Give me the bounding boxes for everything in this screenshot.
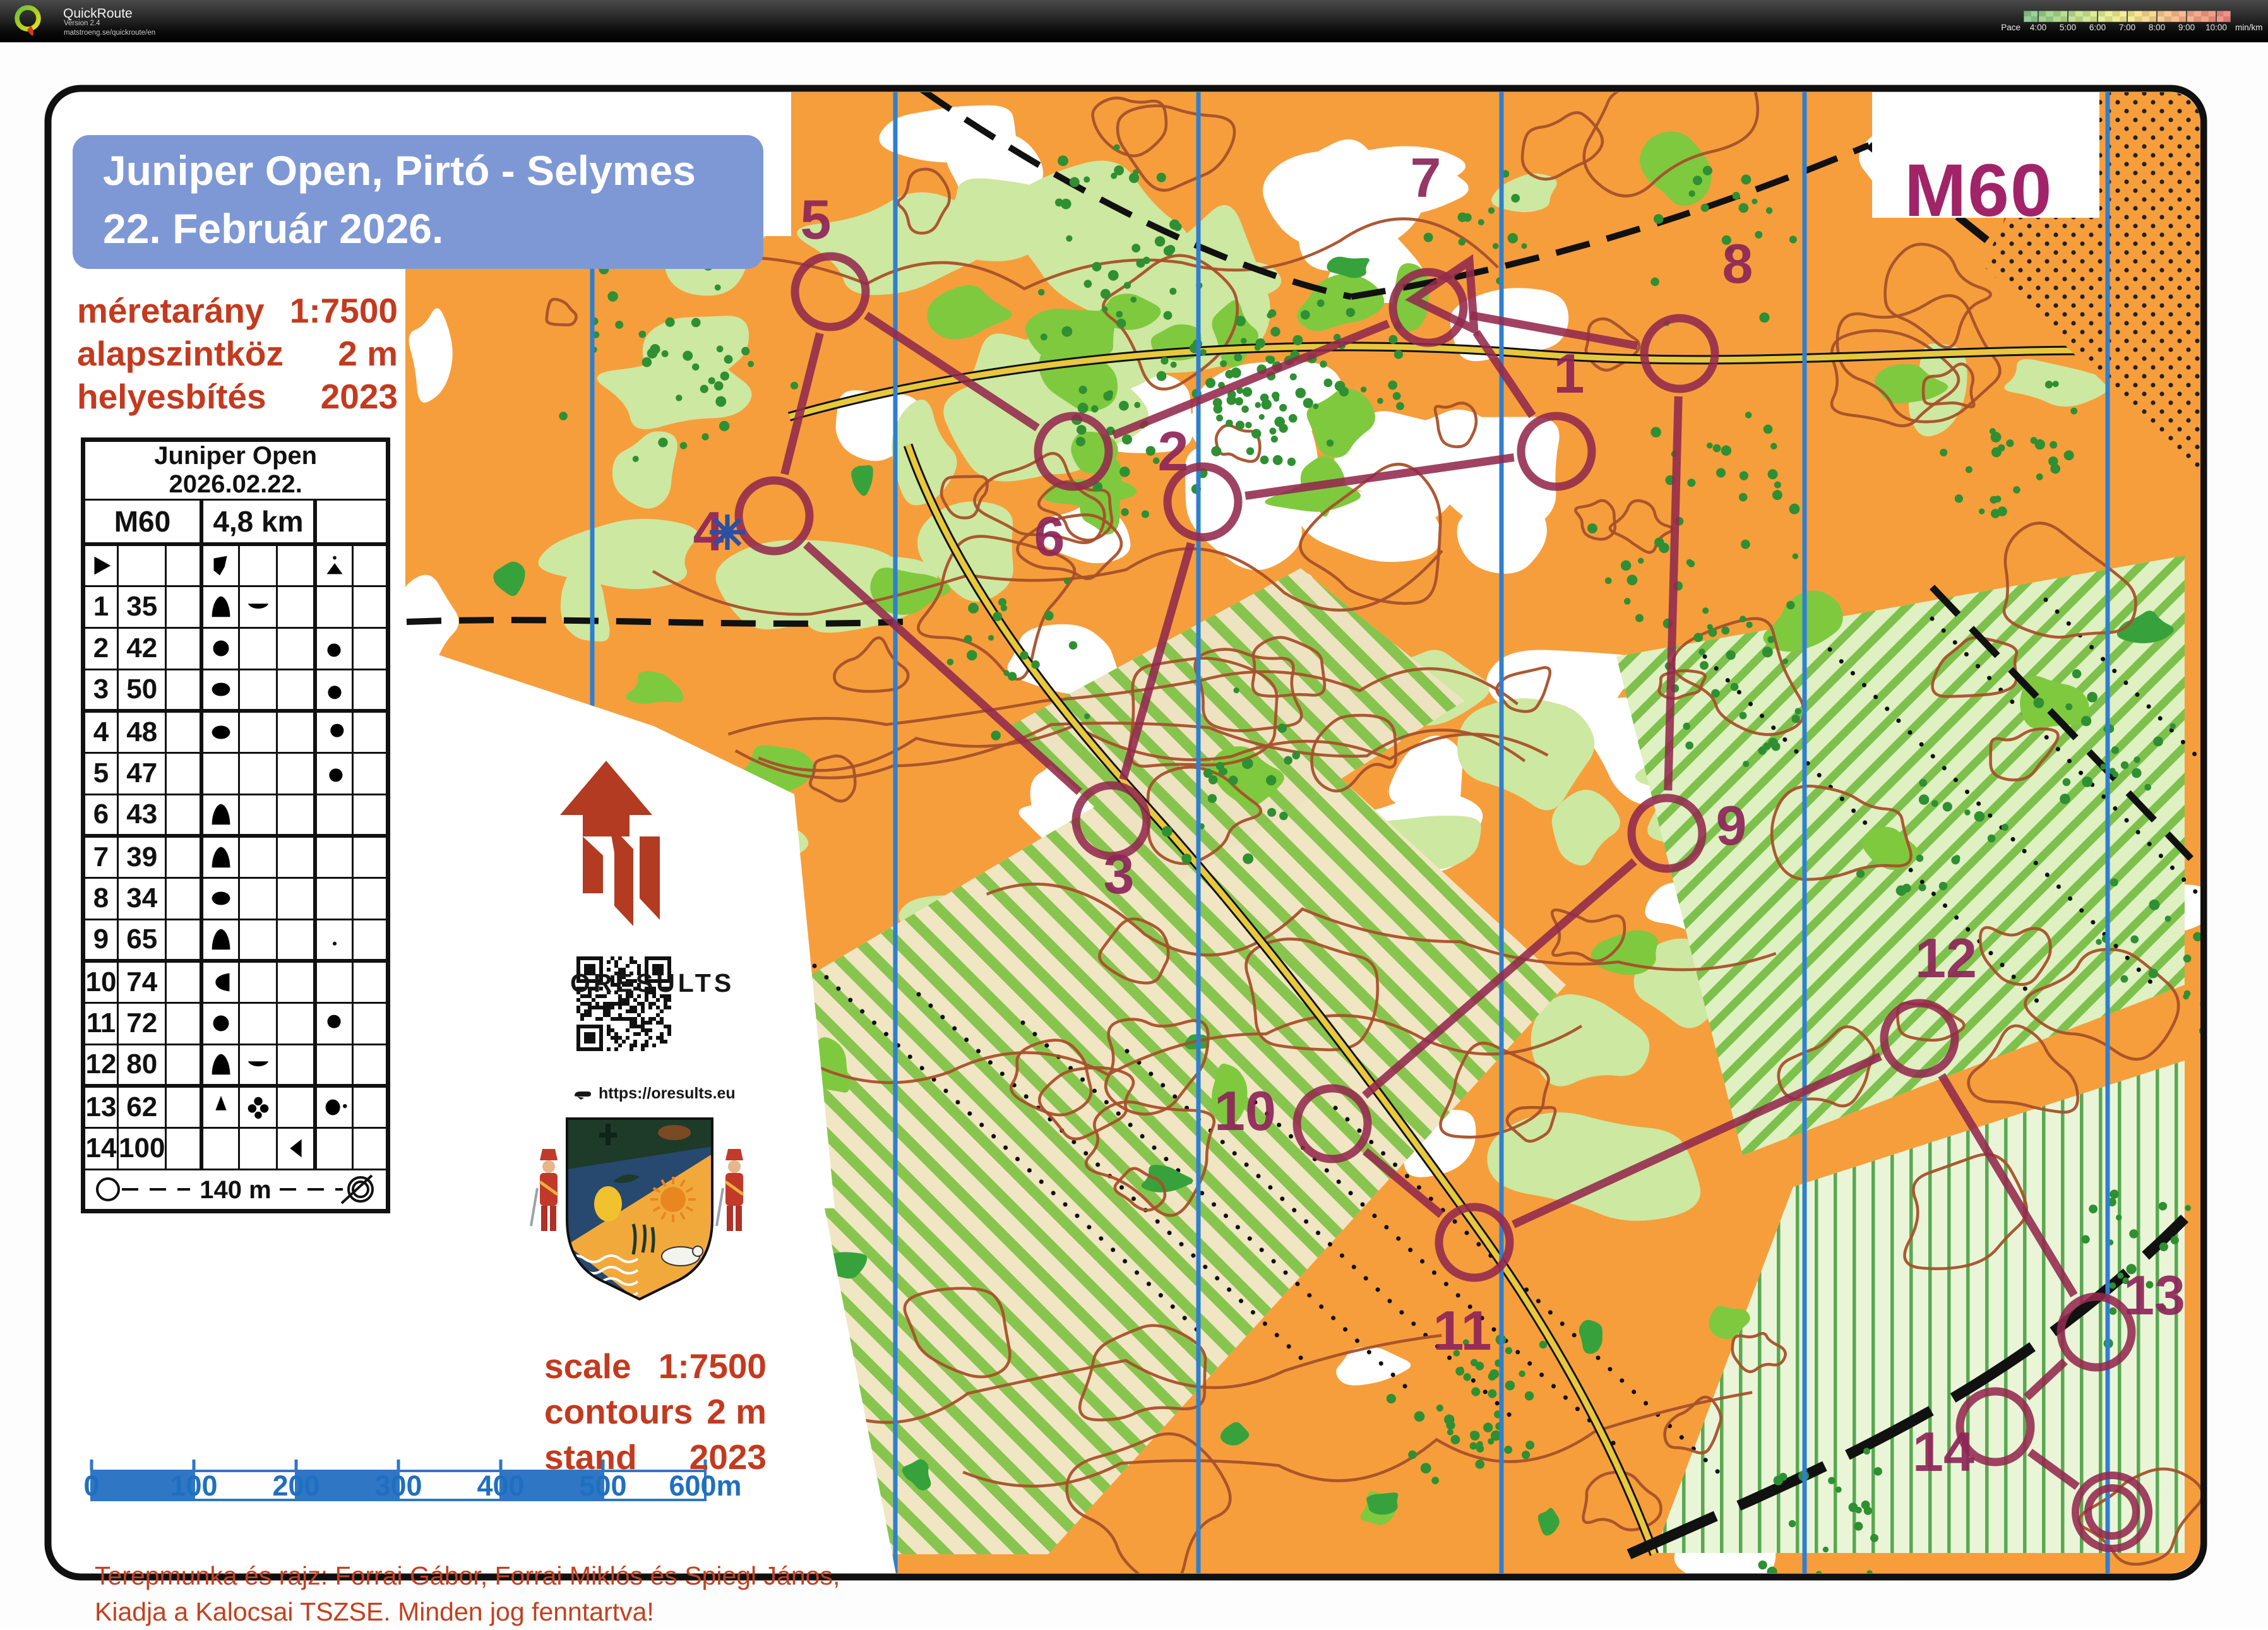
map-info-english: scale1:7500contours2 mstand2023 bbox=[544, 1343, 767, 1480]
start-symbol-icon bbox=[87, 551, 116, 580]
card-row: 448 bbox=[83, 711, 388, 753]
control-number: 13 bbox=[2123, 1264, 2185, 1326]
ellipse-ticks-symbol-icon bbox=[206, 884, 236, 913]
ellipse-symbol-icon bbox=[206, 675, 236, 704]
card-class: M60 bbox=[83, 500, 201, 545]
card-row: 350 bbox=[83, 669, 388, 711]
event-title: Juniper Open, Pirtó - Selymes bbox=[103, 146, 696, 194]
spur-symbol-icon bbox=[206, 968, 236, 997]
circle-l-left-symbol-icon bbox=[320, 718, 349, 747]
scale-bar-label: 100 bbox=[143, 1470, 244, 1502]
control-number: 3 bbox=[1104, 843, 1135, 905]
depression-symbol-icon bbox=[244, 592, 273, 621]
bush-symbol-icon bbox=[244, 1093, 273, 1122]
card-row: 1172 bbox=[83, 1002, 388, 1044]
oresults-label: ORESULTS bbox=[570, 968, 677, 998]
scale-bar-label: 300 bbox=[348, 1470, 449, 1502]
control-number: 14 bbox=[1913, 1420, 1974, 1483]
card-row: 135 bbox=[83, 586, 388, 628]
circle-slash-tl-symbol-icon bbox=[320, 759, 349, 788]
svg-text:140 m: 140 m bbox=[200, 1176, 271, 1204]
control-number: 1 bbox=[1554, 342, 1585, 405]
circle-dot-symbol-icon bbox=[320, 1093, 349, 1122]
dotted-circle-symbol-icon bbox=[206, 634, 236, 663]
map-attribution: Terepmunka és rajz: Forrai Gábor, Forrai… bbox=[95, 1558, 840, 1630]
control-description-card: Juniper Open 2026.02.22.M604,8 km1352423… bbox=[81, 437, 390, 1213]
control-number: 9 bbox=[1716, 794, 1747, 857]
map-info-row: stand2023 bbox=[544, 1434, 767, 1480]
map-info-hungarian: méretarány1:7500alapszintköz2 mhelyesbít… bbox=[77, 289, 398, 418]
route-marker-star bbox=[710, 515, 745, 550]
app-url: matstroeng.se/quickroute/en bbox=[64, 29, 155, 37]
hill-symbol-icon bbox=[206, 925, 236, 954]
hill-symbol-icon bbox=[206, 1050, 236, 1079]
card-row: 965 bbox=[83, 919, 388, 961]
knoll-dot-symbol-icon bbox=[320, 551, 349, 580]
depression-symbol-icon bbox=[244, 1050, 273, 1079]
control-number: 8 bbox=[1722, 232, 1753, 295]
event-date: 22. Február 2026. bbox=[103, 205, 443, 253]
circle-l-top-symbol-icon bbox=[320, 675, 349, 704]
hill-symbol-icon bbox=[206, 843, 236, 872]
pace-tick-label: 10:00 bbox=[2197, 23, 2235, 32]
arrow-sw-symbol-icon bbox=[169, 1009, 198, 1038]
card-row: 1074 bbox=[83, 961, 388, 1002]
control-number: 12 bbox=[1915, 927, 1977, 989]
card-row bbox=[83, 544, 388, 586]
card-finish-row: 140 m bbox=[83, 1169, 388, 1211]
pace-legend-unit: min/km bbox=[2235, 23, 2263, 32]
map-info-row: alapszintköz2 m bbox=[77, 332, 398, 375]
card-row: 1362 bbox=[83, 1086, 388, 1127]
scale-bar-label: 400 bbox=[450, 1470, 551, 1502]
map-canvas[interactable]: 1234567891011121314 Juniper Open, Pirtó … bbox=[0, 42, 2268, 1628]
oresults-url: https://oresults.eu bbox=[573, 1085, 736, 1103]
scale-bar-label: 200 bbox=[246, 1470, 347, 1502]
card-row: 547 bbox=[83, 753, 388, 794]
map-info-row: scale1:7500 bbox=[544, 1343, 767, 1389]
hill-symbol-icon bbox=[206, 800, 236, 829]
map-info-row: méretarány1:7500 bbox=[77, 289, 398, 332]
card-distance: 4,8 km bbox=[201, 500, 315, 545]
control-number: 11 bbox=[1433, 1299, 1491, 1362]
card-row: 834 bbox=[83, 877, 388, 919]
scale-bar-label: 0 bbox=[41, 1470, 142, 1502]
hill-symbol-icon bbox=[206, 592, 236, 621]
arrow-w-symbol-icon bbox=[169, 1093, 198, 1122]
card-row: 643 bbox=[83, 794, 388, 836]
letter-q-symbol-icon bbox=[320, 1009, 349, 1038]
pace-legend-label: Pace bbox=[1976, 23, 2020, 32]
card-row: 1280 bbox=[83, 1044, 388, 1086]
bend-symbol-icon bbox=[206, 551, 236, 580]
oresults-qr-code bbox=[571, 951, 676, 1056]
window-titlebar[interactable]: QuickRoute Version 2.4 matstroeng.se/qui… bbox=[0, 0, 2268, 42]
card-title: Juniper Open 2026.02.22. bbox=[83, 440, 388, 500]
ellipse-symbol-icon bbox=[206, 718, 236, 747]
card-row: 14100 bbox=[83, 1127, 388, 1169]
between-symbol-icon bbox=[320, 925, 349, 954]
junction-symbol-icon bbox=[281, 1134, 310, 1163]
app-version: Version 2.4 bbox=[64, 20, 100, 27]
card-row: 739 bbox=[83, 836, 388, 877]
map-info-row: contours2 m bbox=[544, 1389, 767, 1434]
control-number: 5 bbox=[801, 188, 832, 251]
control-number: 10 bbox=[1214, 1080, 1276, 1142]
pointing-hand-icon bbox=[573, 1087, 592, 1101]
control-number: 2 bbox=[1158, 420, 1189, 482]
dashes-symbol-icon bbox=[206, 1134, 236, 1163]
control-number: 6 bbox=[1034, 505, 1065, 568]
dotted-circle-symbol-icon bbox=[206, 1009, 236, 1038]
tree-symbol-icon bbox=[206, 1093, 236, 1122]
circle-slash-symbol-icon bbox=[320, 634, 349, 663]
crosshatch-symbol-icon bbox=[206, 759, 236, 788]
quickroute-logo-icon bbox=[13, 2, 57, 41]
arrow-ne-symbol-icon bbox=[169, 718, 198, 747]
map-title-banner: Juniper Open, Pirtó - Selymes 22. Februá… bbox=[73, 135, 763, 269]
card-row: 242 bbox=[83, 628, 388, 669]
map-info-row: helyesbítés2023 bbox=[77, 375, 398, 418]
control-number: 7 bbox=[1411, 146, 1441, 209]
course-class-label: M60 bbox=[1904, 148, 2053, 234]
